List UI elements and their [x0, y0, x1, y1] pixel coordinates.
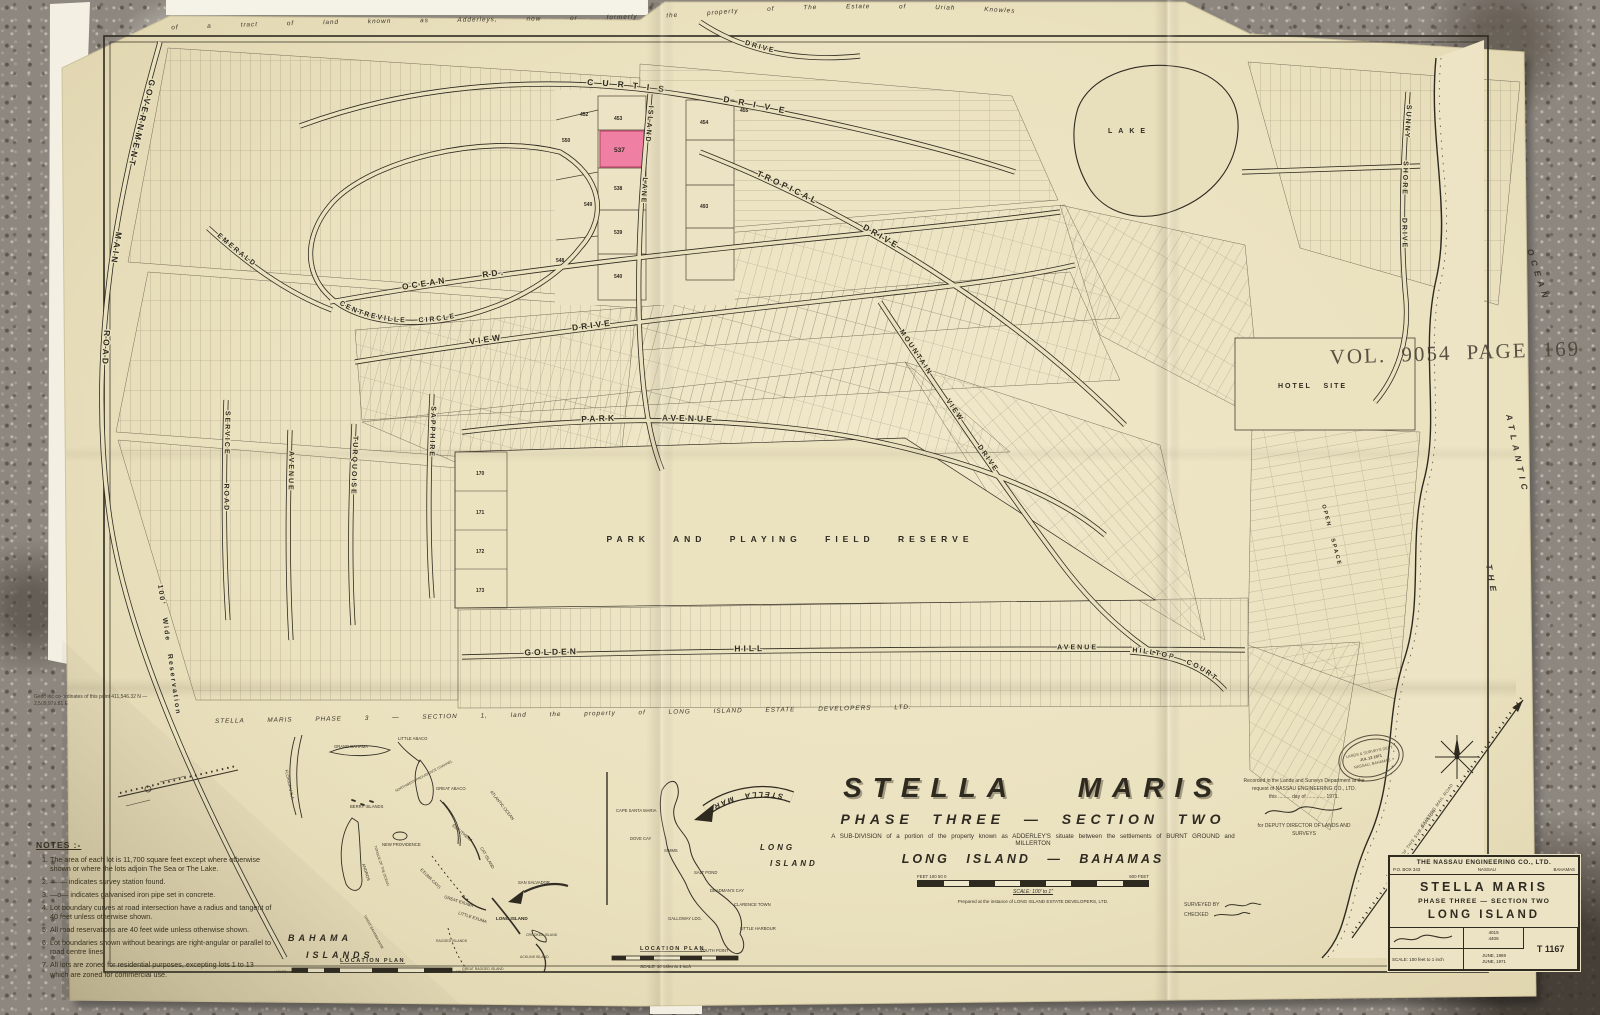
li-scale-bar: [612, 956, 738, 960]
inset-label-long-island: LONG ISLAND: [496, 916, 528, 921]
map-subdivision-line: A SUB-DIVISION of a portion of the prope…: [828, 833, 1238, 847]
map-location: LONG ISLAND — BAHAMAS: [828, 852, 1238, 866]
miles-label-right: MILES: [456, 970, 467, 974]
note-item: —·— indicates survey station found.: [50, 877, 274, 886]
certification-block: Recorded in the Lands and Surveys Depart…: [1222, 778, 1386, 839]
geodetic-coords-note: Geodetic co-ordinates of this point 411,…: [34, 694, 164, 707]
park-col-lot-number: 173: [476, 588, 485, 594]
street-label-avenue-east: AVENUE: [1057, 644, 1098, 651]
lot-number: 549: [584, 202, 593, 208]
checked-label: CHECKED: [1184, 910, 1208, 920]
lot-number: 550: [562, 138, 571, 144]
lot-number: 539: [614, 230, 623, 236]
lot-number: 454: [700, 120, 709, 126]
inset-label: NEW PROVIDENCE: [382, 842, 421, 847]
scale-bar-graphic: [917, 880, 1149, 887]
checker-signature: [1212, 910, 1252, 920]
note-item: —o— indicates galvanised iron pipe set i…: [50, 890, 274, 899]
signature-title: SURVEYS: [1222, 831, 1386, 839]
underlying-paper-strip: [166, 0, 648, 15]
titleblock-signature: [1392, 932, 1454, 946]
titleblock-signature-cell: [1390, 928, 1464, 949]
lot-number: 493: [700, 204, 709, 210]
map-phase: PHASE THREE — SECTION TWO: [828, 811, 1238, 827]
inset-place: DEADMAN'S CAY: [710, 888, 744, 893]
map-title-block: STELLA MARIS PHASE THREE — SECTION TWO A…: [828, 772, 1238, 904]
map-title: STELLA MARIS: [828, 772, 1238, 804]
inset-label: BERRY ISLANDS: [350, 804, 384, 809]
inset-label: GREAT RAGGED ISLAND: [462, 967, 504, 971]
surveyed-by-label: SURVEYED BY: [1184, 900, 1219, 910]
surveyor-signature: [1223, 900, 1263, 910]
inset-label: GRAND BAHAMA: [334, 744, 368, 749]
lot-number: 455: [740, 108, 749, 114]
photographed-plat-on-countertop: { "boundary": { "top": "of a tract of la…: [0, 0, 1600, 1015]
lot-number: 453: [614, 116, 623, 122]
certification-line: request of NASSAU ENGINEERING CO., LTD.: [1222, 786, 1386, 794]
lake-label: LAKE: [1108, 128, 1151, 135]
hotel-site-label: HOTEL SITE: [1278, 383, 1347, 390]
notes-block: NOTES :- The area of each lot is 11,700 …: [36, 840, 274, 983]
note-item: All lots are zoned for residential purpo…: [50, 960, 274, 979]
park-col-lot-number: 172: [476, 549, 485, 555]
certification-line: this ......... day of ............. 1971…: [1222, 794, 1386, 802]
engineering-company: THE NASSAU ENGINEERING CO., LTD.: [1390, 857, 1578, 866]
job-numbers-cell: 4015 4406: [1464, 928, 1524, 949]
note-item: Lot boundary curves at road intersection…: [50, 903, 274, 922]
north-compass: [1435, 735, 1479, 779]
date: JUNE, 1971: [1466, 959, 1522, 965]
inset-place: LITTLE HARBOUR: [740, 926, 776, 931]
inset-place: SALT POND: [694, 870, 717, 875]
official-signature: [1262, 803, 1346, 819]
surveyor-credits: SURVEYED BY CHECKED: [1184, 900, 1314, 920]
lot-number: 452: [580, 112, 589, 118]
project-island: LONG ISLAND: [1390, 905, 1578, 928]
company-city: NASSAU: [1478, 867, 1496, 872]
long-island-name-2: ISLAND: [770, 859, 818, 868]
lot-number: 540: [614, 274, 623, 280]
dates-cell: JUNE, 1969 JUNE, 1971: [1464, 949, 1524, 969]
lot-number: 538: [614, 186, 623, 192]
project-name: STELLA MARIS: [1390, 875, 1578, 894]
prepared-line: Prepared at the instance of LONG ISLAND …: [828, 899, 1238, 904]
inset-label: ACKLINS ISLAND: [520, 955, 549, 959]
inset-label: LITTLE ABACO: [398, 736, 428, 741]
inset-label: SAN SALVADOR: [518, 880, 550, 885]
park-col-lot-number: 170: [476, 471, 485, 477]
signature-title: for DEPUTY DIRECTOR OF LANDS AND: [1222, 823, 1386, 831]
inset-label: GREAT ABACO: [436, 786, 466, 791]
notes-heading: NOTES :-: [36, 840, 274, 851]
company-country: BAHAMAS: [1554, 867, 1575, 872]
po-box: P.O. BOX 343: [1393, 867, 1420, 872]
inset-place: CLARENCE TOWN: [734, 902, 771, 907]
park-col-lot-number: 171: [476, 510, 485, 516]
scale-units-right: 600 FEET: [1129, 874, 1149, 879]
scale-units-left: FEET 100 50 0: [917, 874, 946, 879]
project-phase: PHASE THREE — SECTION TWO: [1390, 894, 1578, 905]
note-item: Lot boundaries shown without bearings ar…: [50, 938, 274, 957]
long-island-name-1: LONG: [760, 843, 795, 852]
sheet-number: T 1167: [1524, 928, 1578, 969]
highlight-lot-number: 537: [614, 147, 625, 154]
map-scale-note: SCALE: 100' to 1": [917, 889, 1149, 895]
map-scale-bar: FEET 100 50 0 600 FEET SCALE: 100' to 1": [917, 874, 1149, 895]
titleblock-scale: SCALE: 100 feet to 1 inch: [1390, 949, 1464, 969]
inset-label: CROOKED ISLAND: [526, 933, 558, 937]
note-item: The area of each lot is 11,700 square fe…: [50, 855, 274, 874]
job-number: 4406: [1466, 936, 1521, 942]
inset-label: RAGGED ISLANDS: [436, 939, 468, 943]
note-item: All road reservations are 40 feet wide u…: [50, 925, 274, 934]
title-block: THE NASSAU ENGINEERING CO., LTD. P.O. BO…: [1388, 855, 1580, 971]
